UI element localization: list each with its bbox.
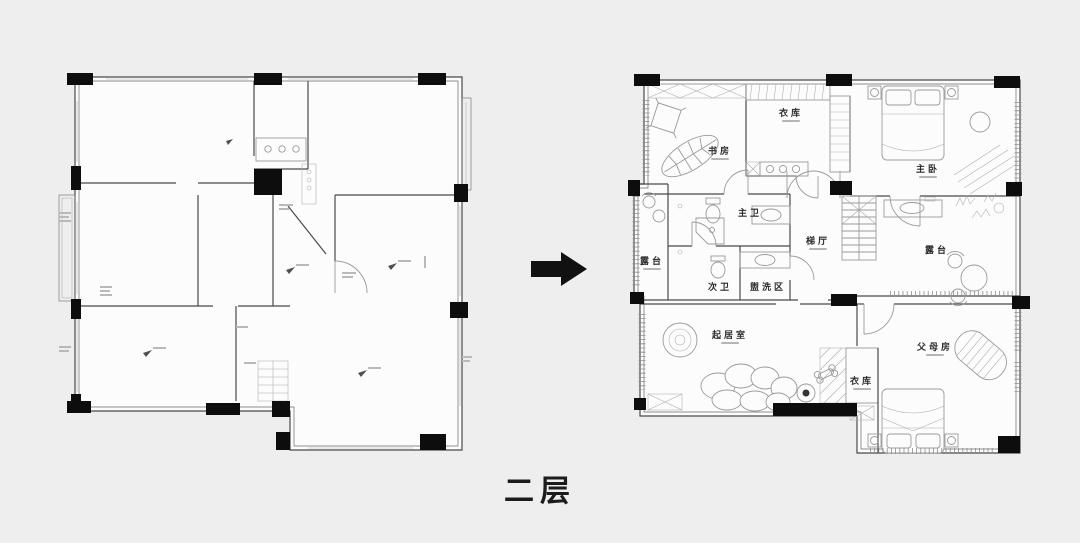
balcony-bay [59,195,75,301]
room-label-study: 书房 [708,145,732,156]
room-label-stair-hall: 梯厅 [806,235,830,246]
floorplan-comparison-image: 书房 衣库 主卧 主卫 露台 次卫 盥洗区 梯厅 露台 起居室 衣库 父母房 二… [0,0,1080,543]
window-bay [462,98,471,190]
room-label-second-bath: 次卫 [708,281,732,292]
floor-caption: 二层 [0,466,1080,510]
room-label-terrace-right: 露台 [925,244,949,255]
room-label-living-room: 起居室 [711,329,748,340]
room-label-closet-bottom: 衣库 [850,375,874,386]
floor-plan-after: 书房 衣库 主卧 主卫 露台 次卫 盥洗区 梯厅 露台 起居室 衣库 父母房 [628,56,1033,460]
room-label-master-bath: 主卫 [738,207,762,218]
plan-outline [75,77,462,450]
room-label-wash-area: 盥洗区 [750,281,786,292]
plan-outline [634,80,1020,453]
room-label-parents-room: 父母房 [916,341,953,352]
room-label-closet-top: 衣库 [779,107,803,118]
transition-arrow [531,252,587,286]
floor-plan-before [58,56,473,458]
room-label-master-bedroom: 主卧 [916,163,940,174]
room-label-terrace-left: 露台 [640,255,664,266]
